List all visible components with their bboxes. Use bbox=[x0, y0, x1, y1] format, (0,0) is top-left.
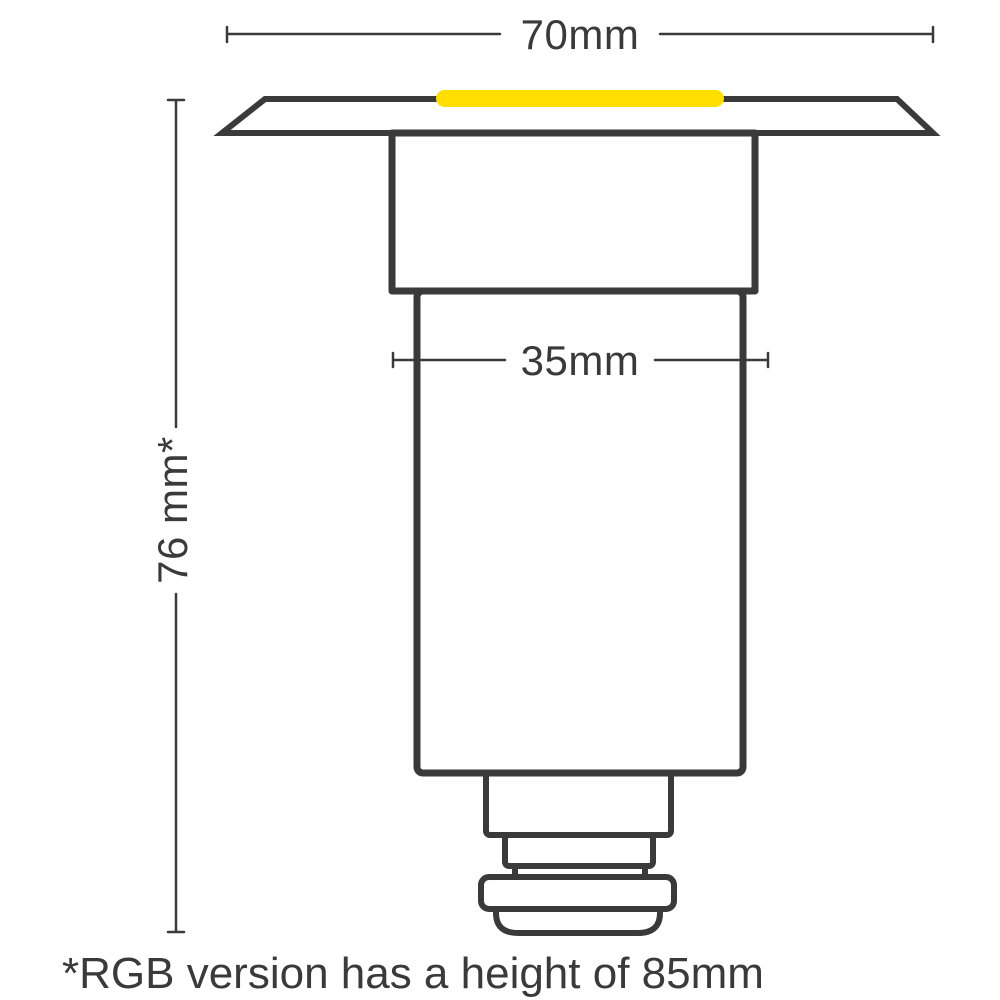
rgb-footnote: *RGB version has a height of 85mm bbox=[62, 949, 764, 998]
technical-diagram: 70mm 35mm 76 mm* *RGB version has a heig… bbox=[0, 0, 1000, 1000]
width-dimension-label: 70mm bbox=[521, 11, 640, 58]
height-dimension-label: 76 mm* bbox=[149, 436, 196, 584]
bottom-dome-outline bbox=[496, 909, 660, 933]
body-width-dimension-label: 35mm bbox=[521, 337, 640, 384]
led-strip bbox=[436, 90, 724, 107]
deck-light-drawing: 70mm 35mm 76 mm* *RGB version has a heig… bbox=[0, 0, 1000, 1000]
dimension-lines bbox=[168, 27, 933, 932]
step-2-outline bbox=[505, 835, 653, 866]
gland-cap-outline bbox=[481, 877, 674, 909]
outlines bbox=[168, 27, 933, 933]
bezel-box-outline bbox=[392, 133, 755, 291]
step-1-outline bbox=[486, 773, 671, 835]
dimension-labels: 70mm 35mm 76 mm* *RGB version has a heig… bbox=[62, 11, 764, 998]
